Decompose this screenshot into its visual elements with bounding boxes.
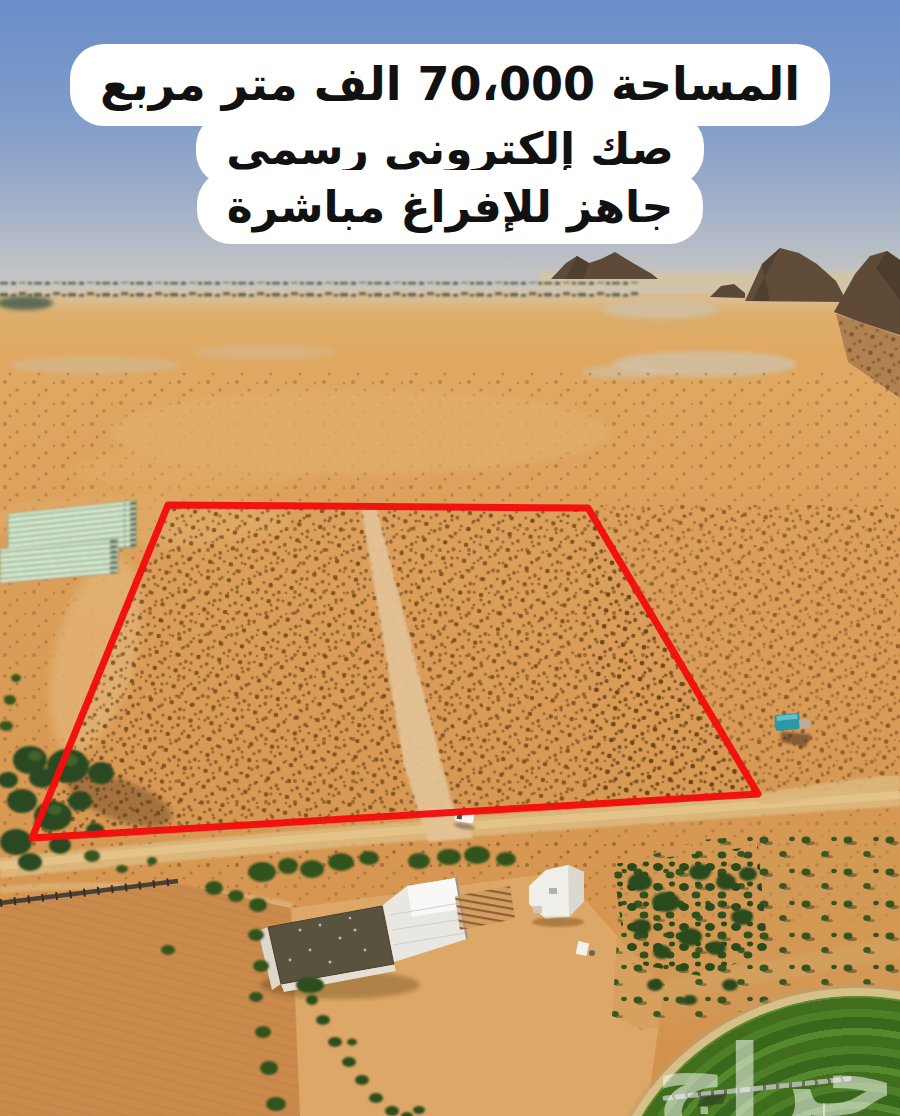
greenhouse-rows (0, 501, 136, 583)
transfer-text-bubble: جاهز للإفراغ مباشرة (197, 170, 703, 244)
roadside-shrub-texture (592, 505, 900, 805)
clay-pans (10, 301, 797, 379)
haraj-watermark-logo: حراج (655, 1032, 896, 1116)
listing-caption: المساحة 70،000 الف متر مربع صك إلكتروني … (0, 44, 900, 244)
aerial-land-listing-photo: حراج المساحة 70،000 الف متر مربع صك إلكت… (0, 0, 900, 1116)
